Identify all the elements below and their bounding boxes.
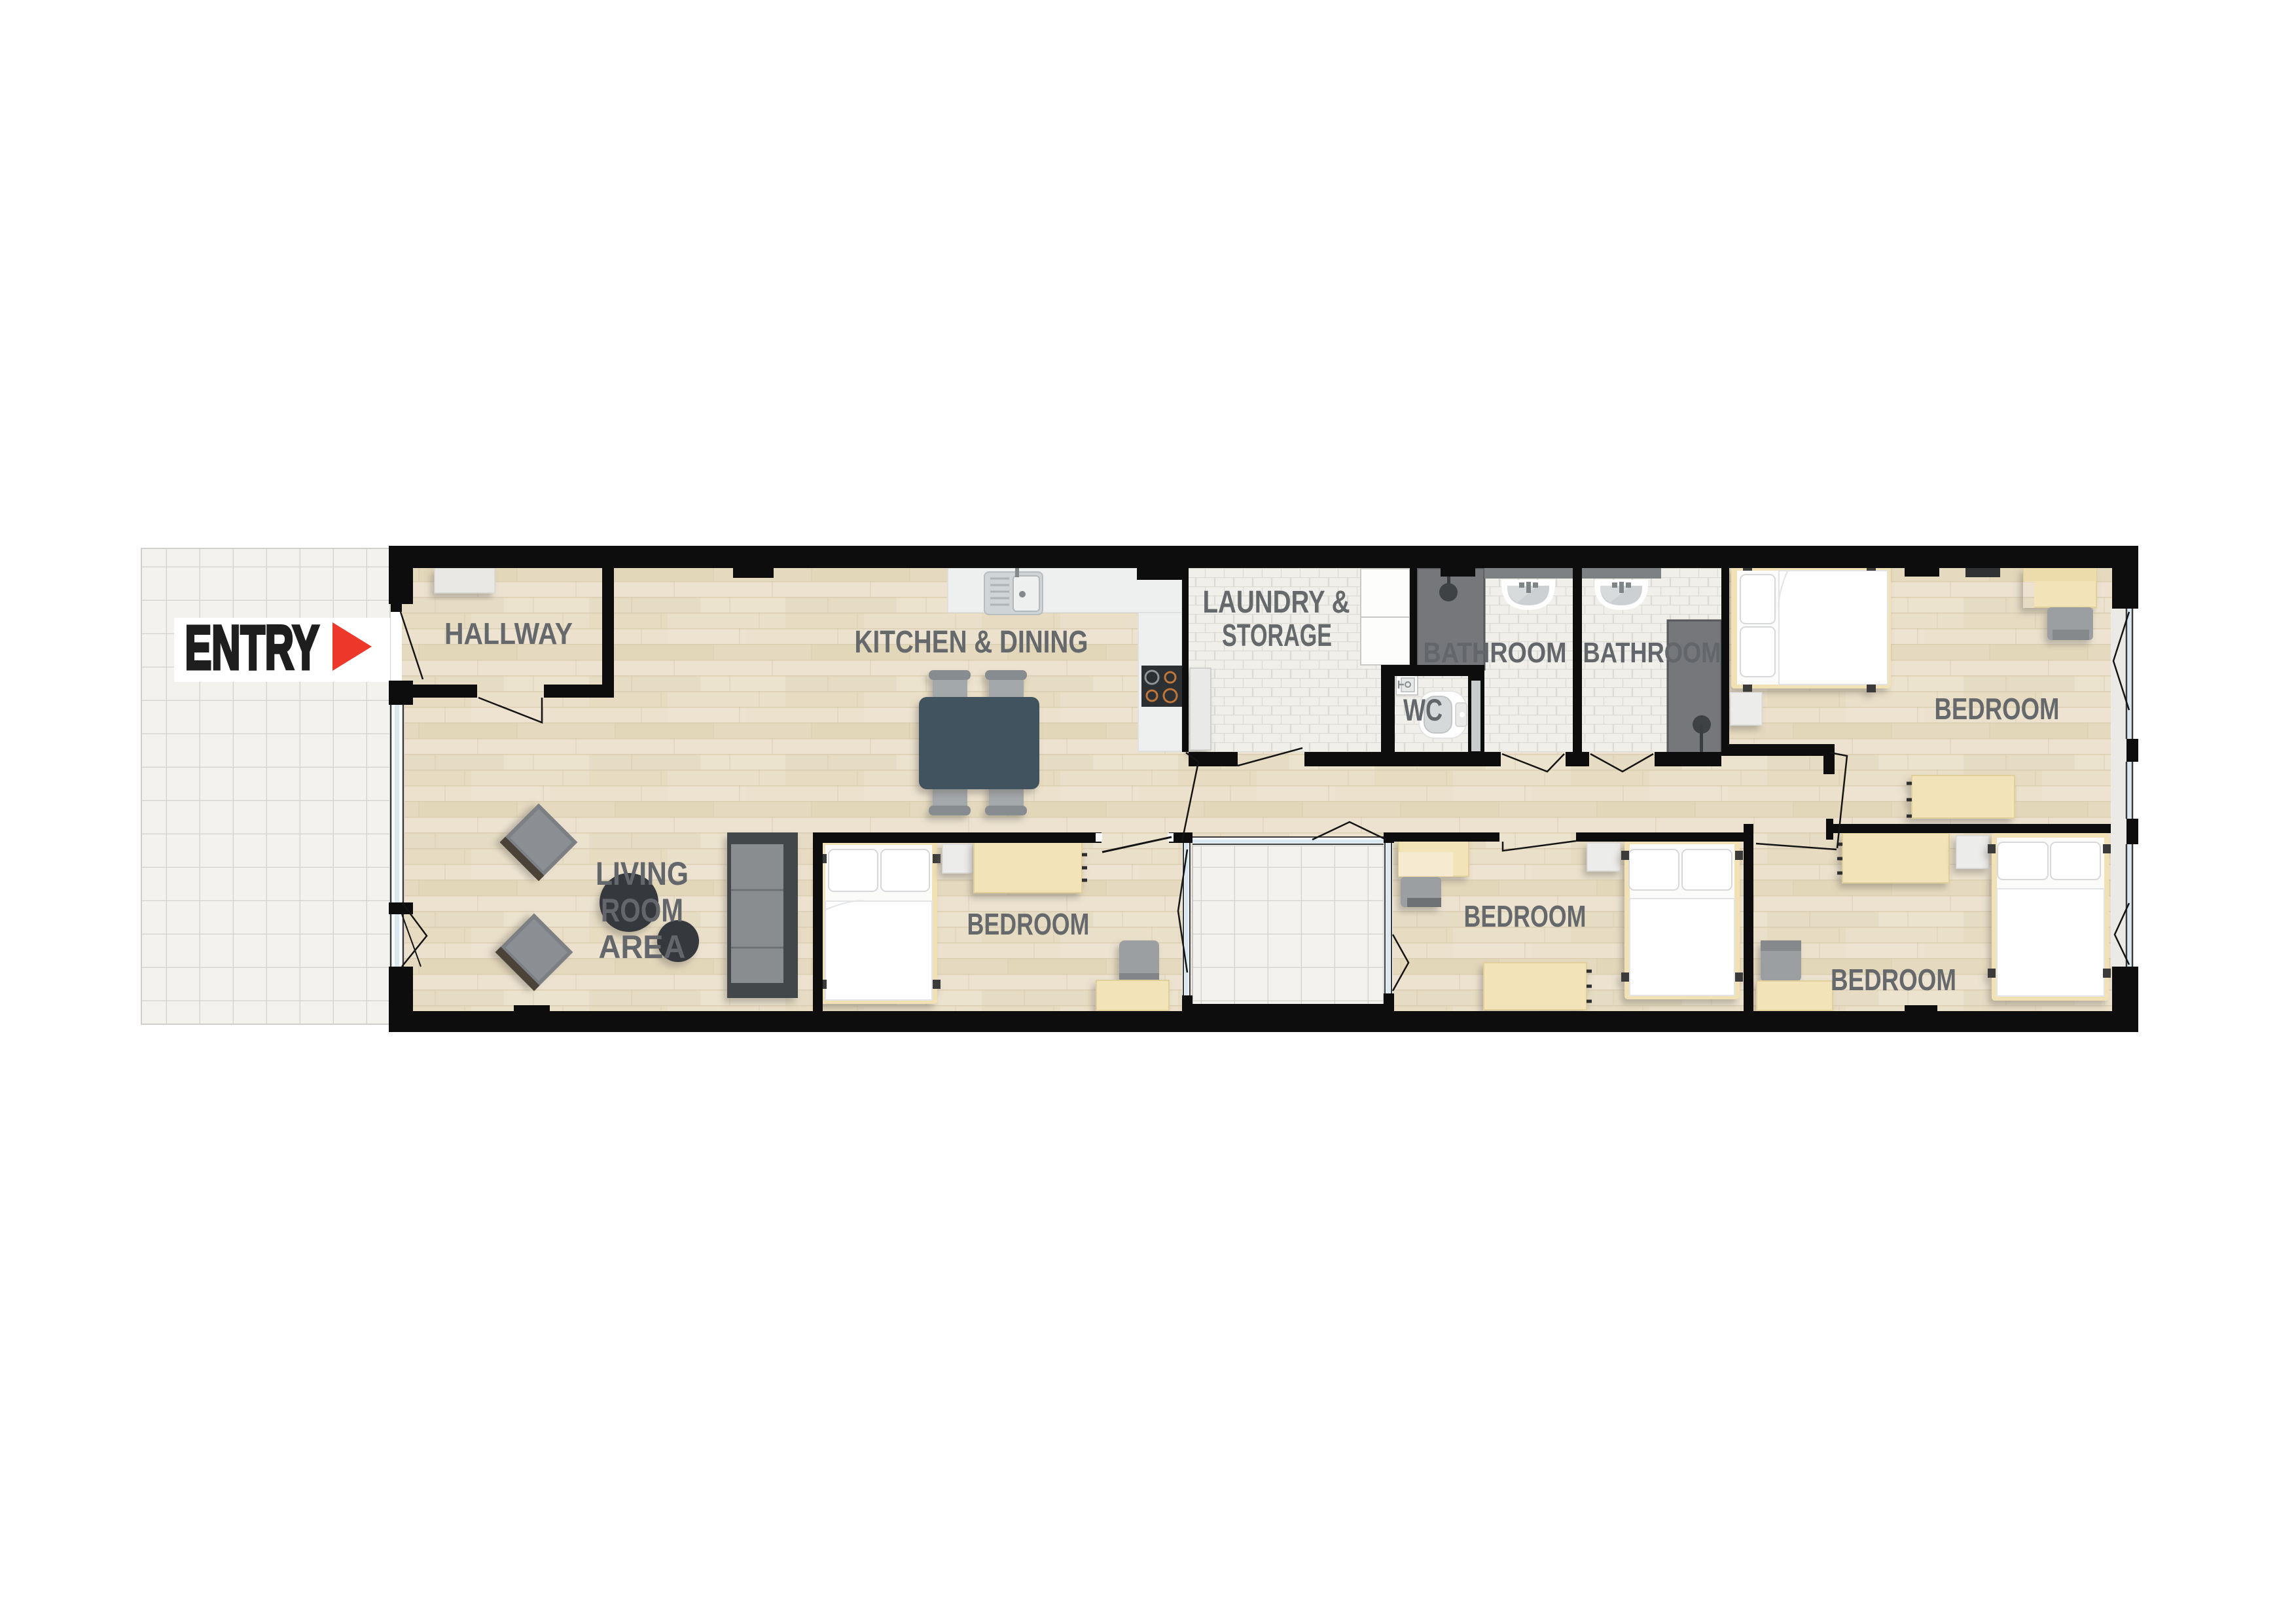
svg-text:ENTRY: ENTRY xyxy=(185,613,319,683)
svg-text:KITCHEN & DINING: KITCHEN & DINING xyxy=(855,625,1088,660)
svg-text:LIVING: LIVING xyxy=(596,855,689,892)
svg-text:LAUNDRY &: LAUNDRY & xyxy=(1203,585,1350,620)
svg-text:BEDROOM: BEDROOM xyxy=(1935,692,2060,726)
svg-text:WC: WC xyxy=(1403,692,1443,727)
svg-text:HALLWAY: HALLWAY xyxy=(444,616,573,651)
svg-text:STORAGE: STORAGE xyxy=(1222,618,1332,653)
svg-text:BEDROOM: BEDROOM xyxy=(967,907,1090,941)
svg-text:BATHROOM: BATHROOM xyxy=(1424,637,1567,669)
svg-text:AREA: AREA xyxy=(599,929,686,965)
svg-text:ROOM: ROOM xyxy=(601,892,683,929)
svg-text:BATHROOM: BATHROOM xyxy=(1583,637,1721,669)
svg-text:BEDROOM: BEDROOM xyxy=(1464,899,1587,933)
svg-text:BEDROOM: BEDROOM xyxy=(1831,963,1956,997)
